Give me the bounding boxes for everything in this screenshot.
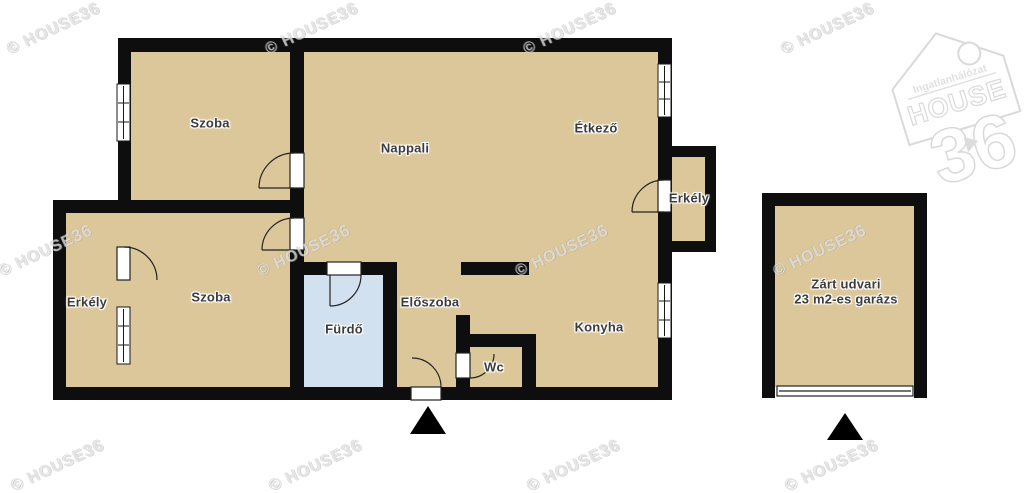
window-konyha-right [658,283,671,338]
window-etkezo-right [658,64,671,117]
entrance-markers [410,406,863,440]
floor-balcony-right [669,157,705,241]
floor-szoba-top [131,52,290,200]
window-szoba-bottom-left [117,307,130,364]
floor-szoba-bottom-and-balcony [66,213,290,387]
floor-plan-canvas: Ingatlanhálózat HOUSE 36 © HOUSE36 © HOU… [0,0,1024,493]
floor-bathroom [304,275,383,387]
entrance-triangle-garage [827,413,863,440]
house36-logo: Ingatlanhálózat HOUSE 36 [880,16,1024,207]
window-szoba-top-left [117,84,130,141]
floor-plan-drawing: Ingatlanhálózat HOUSE 36 [0,0,1024,493]
garage-door [777,386,913,396]
entrance-triangle-main [410,406,446,434]
floor-garage [775,206,914,387]
